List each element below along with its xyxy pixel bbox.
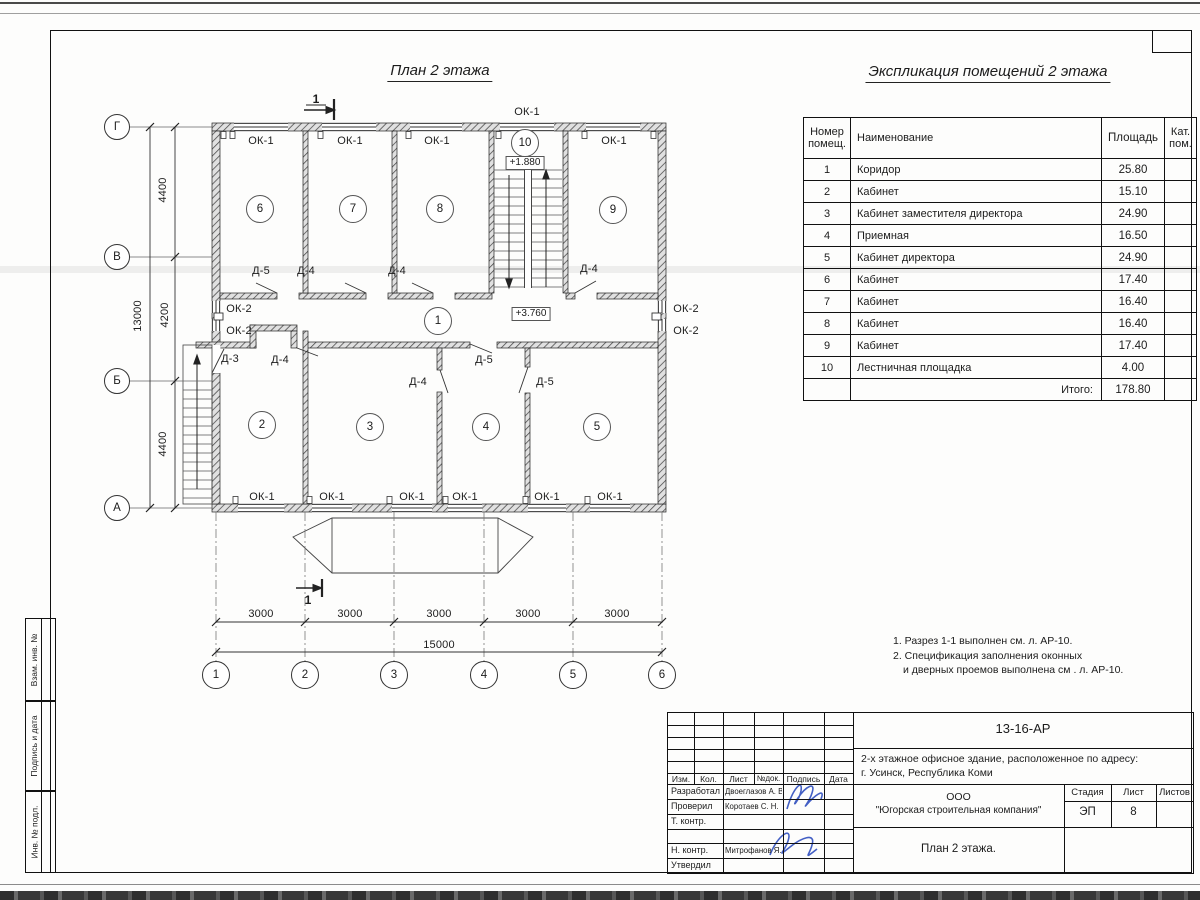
window-label: ОК-1 bbox=[424, 135, 450, 147]
dim-label: 4400 bbox=[157, 431, 169, 456]
door-label: Д-4 bbox=[271, 354, 289, 366]
axis-bubble-4: 4 bbox=[470, 661, 498, 689]
table-cell: 178.80 bbox=[1102, 379, 1165, 401]
table-cell bbox=[1165, 247, 1197, 269]
table-cell: 1 bbox=[804, 159, 851, 181]
table-cell: 4 bbox=[804, 225, 851, 247]
table-row: 5Кабинет директора24.90 bbox=[804, 247, 1197, 269]
window-label: ОК-1 bbox=[399, 491, 425, 503]
role-label: Н. контр. bbox=[671, 845, 722, 855]
level-mark: +3.760 bbox=[512, 307, 551, 321]
tb-col-izm: Изм. bbox=[668, 774, 694, 784]
document-number: 13-16-АР bbox=[853, 721, 1193, 736]
table-cell: 16.40 bbox=[1102, 313, 1165, 335]
axis-bubble-6: 6 bbox=[648, 661, 676, 689]
table-cell: 2 bbox=[804, 181, 851, 203]
sheet-number: 8 bbox=[1111, 806, 1156, 818]
table-cell: 5 bbox=[804, 247, 851, 269]
door-label: Д-5 bbox=[475, 354, 493, 366]
explication-title: Экспликация помещений 2 этажа bbox=[865, 63, 1110, 83]
drawing-sheet: План 2 этажа Экспликация помещений 2 эта… bbox=[0, 0, 1200, 900]
table-cell bbox=[1165, 291, 1197, 313]
tb-col-ndoc: №док. bbox=[754, 774, 783, 784]
table-cell: Приемная bbox=[851, 225, 1102, 247]
room-number-bubble: 1 bbox=[424, 307, 452, 335]
sidebar-stamp-box: Подпись и дата bbox=[25, 700, 56, 792]
sidebar-stamp-box: Взам. инв. № bbox=[25, 618, 56, 702]
sidebar-stamp-label: Подпись и дата bbox=[27, 701, 41, 791]
table-header: Площадь bbox=[1102, 118, 1165, 159]
dim-label: 3000 bbox=[604, 608, 629, 620]
dim-label: 3000 bbox=[248, 608, 273, 620]
table-row: 7Кабинет16.40 bbox=[804, 291, 1197, 313]
table-cell: 17.40 bbox=[1102, 335, 1165, 357]
sidebar-stamp-box: Инв. № подл. bbox=[25, 790, 56, 873]
table-cell: Кабинет bbox=[851, 181, 1102, 203]
internal-stair bbox=[494, 169, 562, 288]
window-label: ОК-2 bbox=[673, 325, 699, 337]
table-row: 6Кабинет17.40 bbox=[804, 269, 1197, 291]
table-cell bbox=[1165, 159, 1197, 181]
room-number-bubble: 7 bbox=[339, 195, 367, 223]
role-label: Утвердил bbox=[671, 860, 722, 870]
door-label: Д-5 bbox=[536, 376, 554, 388]
table-row: 1Коридор25.80 bbox=[804, 159, 1197, 181]
dim-label: 3000 bbox=[426, 608, 451, 620]
level-mark: +1.880 bbox=[506, 156, 545, 170]
window-label: ОК-1 bbox=[249, 491, 275, 503]
table-cell bbox=[1165, 203, 1197, 225]
table-cell: Итого: bbox=[851, 379, 1102, 401]
dim-label: 15000 bbox=[423, 639, 455, 651]
axis-bubble-В: В bbox=[104, 244, 130, 270]
window-label: ОК-1 bbox=[452, 491, 478, 503]
axis-bubble-2: 2 bbox=[291, 661, 319, 689]
table-cell: 24.90 bbox=[1102, 247, 1165, 269]
room-number-bubble: 2 bbox=[248, 411, 276, 439]
section-mark-label: 1 bbox=[313, 92, 320, 106]
table-cell: 16.40 bbox=[1102, 291, 1165, 313]
title-block: Изм. Кол. Лист №док. Подпись Дата Разраб… bbox=[667, 712, 1194, 874]
door-label: Д-3 bbox=[221, 353, 239, 365]
window-label: ОК-2 bbox=[673, 303, 699, 315]
table-cell bbox=[1165, 313, 1197, 335]
table-row: 9Кабинет17.40 bbox=[804, 335, 1197, 357]
note-line: 2. Спецификация заполнения оконных bbox=[893, 649, 1183, 664]
table-cell: Кабинет заместителя директора bbox=[851, 203, 1102, 225]
table-cell: 7 bbox=[804, 291, 851, 313]
sidebar-stamp-label: Взам. инв. № bbox=[27, 619, 41, 701]
tb-col-sign: Подпись bbox=[783, 774, 824, 784]
window-label: ОК-2 bbox=[226, 325, 252, 337]
room-number-bubble: 5 bbox=[583, 413, 611, 441]
note-line: 1. Разрез 1-1 выполнен см. л. АР-10. bbox=[893, 634, 1183, 649]
window-label: ОК-1 bbox=[601, 135, 627, 147]
external-stair bbox=[183, 345, 212, 504]
stage-label: Стадия bbox=[1064, 787, 1111, 798]
door-label: Д-5 bbox=[252, 265, 270, 277]
table-cell: Лестничная площадка bbox=[851, 357, 1102, 379]
dimension-ticks bbox=[146, 123, 666, 656]
table-row: 2Кабинет15.10 bbox=[804, 181, 1197, 203]
table-cell: 17.40 bbox=[1102, 269, 1165, 291]
window-label: ОК-1 bbox=[534, 491, 560, 503]
role-name: Коротаев С. Н. bbox=[725, 802, 782, 811]
dim-label: 3000 bbox=[337, 608, 362, 620]
door-label: Д-4 bbox=[388, 265, 406, 277]
table-cell: 6 bbox=[804, 269, 851, 291]
project-description-line1: 2-х этажное офисное здание, расположенно… bbox=[861, 753, 1191, 765]
role-name: Двоеглазов А. В. bbox=[725, 787, 782, 796]
table-cell: 16.50 bbox=[1102, 225, 1165, 247]
door-label: Д-4 bbox=[297, 265, 315, 277]
explication-table: Номер помещ.НаименованиеПлощадьКат. пом.… bbox=[803, 117, 1197, 401]
table-cell: 25.80 bbox=[1102, 159, 1165, 181]
room-number-bubble: 3 bbox=[356, 413, 384, 441]
table-row: 3Кабинет заместителя директора24.90 bbox=[804, 203, 1197, 225]
table-cell bbox=[1165, 357, 1197, 379]
table-cell: 3 bbox=[804, 203, 851, 225]
axis-bubble-Б: Б bbox=[104, 368, 130, 394]
window-label: ОК-1 bbox=[248, 135, 274, 147]
table-cell: Кабинет bbox=[851, 335, 1102, 357]
sheet-label: Лист bbox=[1111, 787, 1156, 798]
table-cell bbox=[804, 379, 851, 401]
table-cell: Кабинет bbox=[851, 291, 1102, 313]
table-total-row: Итого:178.80 bbox=[804, 379, 1197, 401]
table-cell: 4.00 bbox=[1102, 357, 1165, 379]
plan-title: План 2 этажа bbox=[387, 62, 492, 82]
room-number-bubble: 8 bbox=[426, 195, 454, 223]
window-label: ОК-1 bbox=[597, 491, 623, 503]
room-number-bubble: 9 bbox=[599, 196, 627, 224]
section-mark-label: 1 bbox=[305, 593, 312, 607]
dim-label: 3000 bbox=[515, 608, 540, 620]
role-label: Разработал bbox=[671, 786, 722, 796]
table-cell: Коридор bbox=[851, 159, 1102, 181]
table-header: Кат. пом. bbox=[1165, 118, 1197, 159]
role-label: Т. контр. bbox=[671, 816, 722, 826]
room-number-bubble: 10 bbox=[511, 129, 539, 157]
tb-col-list: Лист bbox=[723, 774, 754, 784]
tb-col-date: Дата bbox=[824, 774, 853, 784]
tb-col-kol: Кол. bbox=[694, 774, 723, 784]
sheet-title: План 2 этажа. bbox=[853, 843, 1064, 855]
note-line: и дверных проемов выполнена см . л. АР-1… bbox=[893, 663, 1183, 678]
window-label: ОК-1 bbox=[319, 491, 345, 503]
stage-value: ЭП bbox=[1064, 806, 1111, 818]
table-cell bbox=[1165, 379, 1197, 401]
table-cell: Кабинет bbox=[851, 269, 1102, 291]
company-name-line1: ООО bbox=[853, 791, 1064, 803]
table-header: Наименование bbox=[851, 118, 1102, 159]
table-cell bbox=[1165, 225, 1197, 247]
table-cell: 24.90 bbox=[1102, 203, 1165, 225]
role-label: Проверил bbox=[671, 801, 722, 811]
entrance-canopy bbox=[293, 518, 533, 573]
window-label: ОК-1 bbox=[514, 106, 540, 118]
dim-label: 4200 bbox=[159, 302, 171, 327]
table-cell: 15.10 bbox=[1102, 181, 1165, 203]
table-cell: 9 bbox=[804, 335, 851, 357]
role-name: Митрофанов Я. А. bbox=[725, 846, 782, 855]
table-row: 8Кабинет16.40 bbox=[804, 313, 1197, 335]
room-number-bubble: 6 bbox=[246, 195, 274, 223]
table-cell bbox=[1165, 269, 1197, 291]
dim-label: 4400 bbox=[157, 177, 169, 202]
sidebar-stamp-label: Инв. № подл. bbox=[27, 791, 41, 872]
dim-label: 13000 bbox=[132, 300, 144, 332]
table-cell bbox=[1165, 181, 1197, 203]
table-cell bbox=[1165, 335, 1197, 357]
table-cell: Кабинет директора bbox=[851, 247, 1102, 269]
notes: 1. Разрез 1-1 выполнен см. л. АР-10. 2. … bbox=[893, 634, 1183, 678]
project-description-line2: г. Усинск, Республика Коми bbox=[861, 767, 1191, 779]
company-name-line2: "Югорская строительная компания" bbox=[853, 805, 1064, 816]
axis-bubble-Г: Г bbox=[104, 114, 130, 140]
axis-bubble-5: 5 bbox=[559, 661, 587, 689]
table-cell: 10 bbox=[804, 357, 851, 379]
table-header: Номер помещ. bbox=[804, 118, 851, 159]
axis-bubble-3: 3 bbox=[380, 661, 408, 689]
axis-bubble-1: 1 bbox=[202, 661, 230, 689]
table-cell: 8 bbox=[804, 313, 851, 335]
sheets-label: Листов bbox=[1156, 787, 1193, 798]
table-row: 4Приемная16.50 bbox=[804, 225, 1197, 247]
door-label: Д-4 bbox=[409, 376, 427, 388]
table-cell: Кабинет bbox=[851, 313, 1102, 335]
door-label: Д-4 bbox=[580, 263, 598, 275]
room-number-bubble: 4 bbox=[472, 413, 500, 441]
window-label: ОК-1 bbox=[337, 135, 363, 147]
table-row: 10Лестничная площадка4.00 bbox=[804, 357, 1197, 379]
window-label: ОК-2 bbox=[226, 303, 252, 315]
axis-bubble-А: А bbox=[104, 495, 130, 521]
